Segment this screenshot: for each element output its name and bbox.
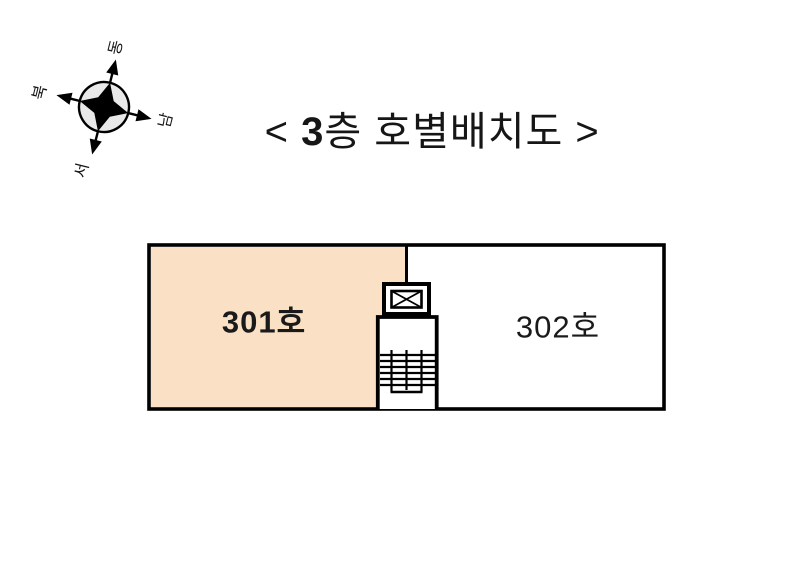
room-301-label: 301호	[222, 297, 306, 342]
page-title: < 3층 호별배치도 >	[216, 54, 600, 202]
title-floor-number: 3	[301, 110, 324, 154]
compass-arrowhead-up	[106, 58, 122, 76]
floor-plan-page: < 3층 호별배치도 > 301호 302호 동 북 남 서	[0, 0, 800, 568]
elevator-icon	[384, 284, 429, 314]
room-302-label: 302호	[516, 302, 600, 347]
compass-rose-icon	[45, 48, 164, 167]
compass-arrowhead-down	[86, 138, 102, 156]
title-text: 층 호별배치도 >	[324, 110, 599, 154]
compass-arrowhead-left	[55, 89, 73, 105]
title-open-bracket: <	[265, 110, 301, 154]
